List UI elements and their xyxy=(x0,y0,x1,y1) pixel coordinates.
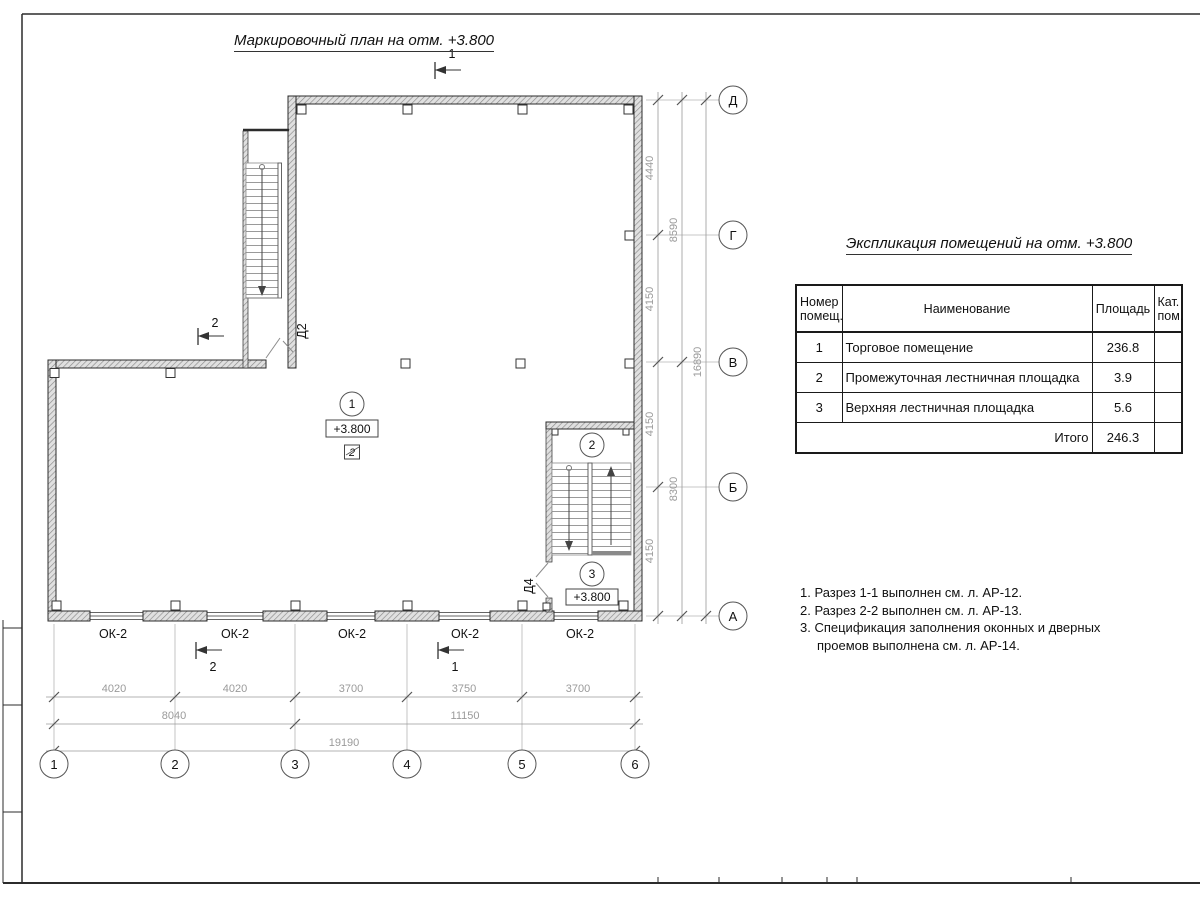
door-label-d4: Д4 xyxy=(522,578,536,593)
room-area-cell: 5.6 xyxy=(1092,393,1154,423)
pier-2 xyxy=(143,611,207,621)
pier-1 xyxy=(48,611,90,621)
window-label-1: ОК-2 xyxy=(99,627,127,641)
header-room-number: Номер помещ. xyxy=(796,285,842,332)
stair-right-landing-edge xyxy=(592,551,631,555)
room-cat-cell xyxy=(1154,393,1182,423)
window-labels: ОК-2 ОК-2 ОК-2 ОК-2 ОК-2 xyxy=(99,627,594,641)
header-area: Площадь xyxy=(1092,285,1154,332)
dim-3700-b: 3700 xyxy=(566,683,590,695)
dim-16890: 16890 xyxy=(692,347,704,378)
left-wall xyxy=(48,360,56,620)
dim-4020-a: 4020 xyxy=(102,683,126,695)
right-dimension-text: 4440 4150 4150 4150 8590 8300 16890 xyxy=(644,156,704,563)
top-wall xyxy=(290,96,642,104)
room-number-cell: 1 xyxy=(796,332,842,363)
stair-left-stringer xyxy=(278,163,282,298)
dim-8300: 8300 xyxy=(668,477,680,501)
stair-right-stringer xyxy=(588,463,592,555)
window-label-4: ОК-2 xyxy=(451,627,479,641)
dim-4440: 4440 xyxy=(644,156,656,180)
axis-5: 5 xyxy=(518,757,525,772)
room-name-cell: Верхняя лестничная площадка xyxy=(842,393,1092,423)
section-mark-bottom-1: 1 xyxy=(438,642,464,674)
explication-title: Экспликация помещений на отм. +3.800 xyxy=(846,235,1132,255)
axis-g: Г xyxy=(729,228,736,243)
note-1: 1. Разрез 1-1 выполнен см. л. АР-12. xyxy=(800,584,1100,602)
axis-a: А xyxy=(729,609,738,624)
axis-bubbles-bottom: 1 2 3 4 5 6 xyxy=(40,750,649,778)
room-area-cell: 236.8 xyxy=(1092,332,1154,363)
dim-8590: 8590 xyxy=(668,218,680,242)
v-axis-wall xyxy=(48,360,266,368)
section-bottom1-label: 1 xyxy=(452,660,459,674)
staircase-left xyxy=(243,130,289,298)
room-marker-3: 3 +3.800 xyxy=(566,562,618,605)
room-area-cell: 3.9 xyxy=(1092,363,1154,393)
drawing-sheet: { "titles": { "plan": "Маркировочный пла… xyxy=(0,0,1200,900)
header-room-name: Наименование xyxy=(842,285,1092,332)
section-mark-bottom-2: 2 xyxy=(196,642,222,674)
window-label-3: ОК-2 xyxy=(338,627,366,641)
pier-6 xyxy=(598,611,642,621)
pier-4 xyxy=(375,611,439,621)
room-cat-cell xyxy=(1154,332,1182,363)
dim-3750: 3750 xyxy=(452,683,476,695)
axis-1: 1 xyxy=(50,757,57,772)
axis-d: Д xyxy=(729,93,738,108)
table-total-row: Итого 246.3 xyxy=(796,423,1182,454)
header-category: Кат. пом. xyxy=(1154,285,1182,332)
dim-4150-a: 4150 xyxy=(644,287,656,311)
plan-title: Маркировочный план на отм. +3.800 xyxy=(234,32,494,52)
dim-8040: 8040 xyxy=(162,710,186,722)
table-header-row: Номер помещ. Наименование Площадь Кат. п… xyxy=(796,285,1182,332)
axis-bubbles-right: Д Г В Б А xyxy=(719,86,747,630)
dim-4150-c: 4150 xyxy=(644,539,656,563)
dim-11150: 11150 xyxy=(451,710,480,722)
room-3-number: 3 xyxy=(589,567,596,581)
room-number-cell: 3 xyxy=(796,393,842,423)
total-cat-cell xyxy=(1154,423,1182,454)
stair-right-top-wall xyxy=(546,422,634,429)
total-area: 246.3 xyxy=(1092,423,1154,454)
room-marker-2: 2 xyxy=(580,433,604,457)
room-name-cell: Торговое помещение xyxy=(842,332,1092,363)
table-row: 3 Верхняя лестничная площадка 5.6 xyxy=(796,393,1182,423)
axis-2: 2 xyxy=(171,757,178,772)
axis-v: В xyxy=(729,355,738,370)
right-wall xyxy=(634,96,642,620)
room-cat-cell xyxy=(1154,363,1182,393)
table-row: 2 Промежуточная лестничная площадка 3.9 xyxy=(796,363,1182,393)
note-2: 2. Разрез 2-2 выполнен см. л. АР-13. xyxy=(800,602,1100,620)
stair-right-left-wall xyxy=(546,429,552,562)
axis-6: 6 xyxy=(631,757,638,772)
dim-4150-b: 4150 xyxy=(644,412,656,436)
room-number-cell: 2 xyxy=(796,363,842,393)
dim-19190: 19190 xyxy=(329,737,360,749)
axis-3: 3 xyxy=(291,757,298,772)
dim-3700-a: 3700 xyxy=(339,683,363,695)
note-3-cont: проемов выполнена см. л. АР-14. xyxy=(800,637,1100,655)
table-row: 1 Торговое помещение 236.8 xyxy=(796,332,1182,363)
room-1-elevation: +3.800 xyxy=(333,422,370,436)
staircase-right xyxy=(552,463,631,555)
dim-4020-b: 4020 xyxy=(223,683,247,695)
pier-5 xyxy=(490,611,554,621)
room-3-elevation: +3.800 xyxy=(573,590,610,604)
room-name-cell: Промежуточная лестничная площадка xyxy=(842,363,1092,393)
axis-b: Б xyxy=(729,480,738,495)
room-2-number: 2 xyxy=(589,438,596,452)
room-1-number: 1 xyxy=(349,397,356,411)
note-3: 3. Спецификация заполнения оконных и две… xyxy=(800,619,1100,637)
section-left-label: 2 xyxy=(212,316,219,330)
explication-table: Номер помещ. Наименование Площадь Кат. п… xyxy=(795,284,1183,454)
room-marker-1: 1 +3.800 2 xyxy=(326,392,378,459)
axis-4: 4 xyxy=(403,757,410,772)
door-label-d2: Д2 xyxy=(295,323,309,338)
section-mark-left: 2 xyxy=(198,316,224,345)
section-bottom2-label: 2 xyxy=(210,660,217,674)
door-d4 xyxy=(536,563,548,597)
total-label: Итого xyxy=(796,423,1092,454)
window-label-5: ОК-2 xyxy=(566,627,594,641)
window-label-2: ОК-2 xyxy=(221,627,249,641)
pier-3 xyxy=(263,611,327,621)
notes-block: 1. Разрез 1-1 выполнен см. л. АР-12. 2. … xyxy=(800,584,1100,654)
